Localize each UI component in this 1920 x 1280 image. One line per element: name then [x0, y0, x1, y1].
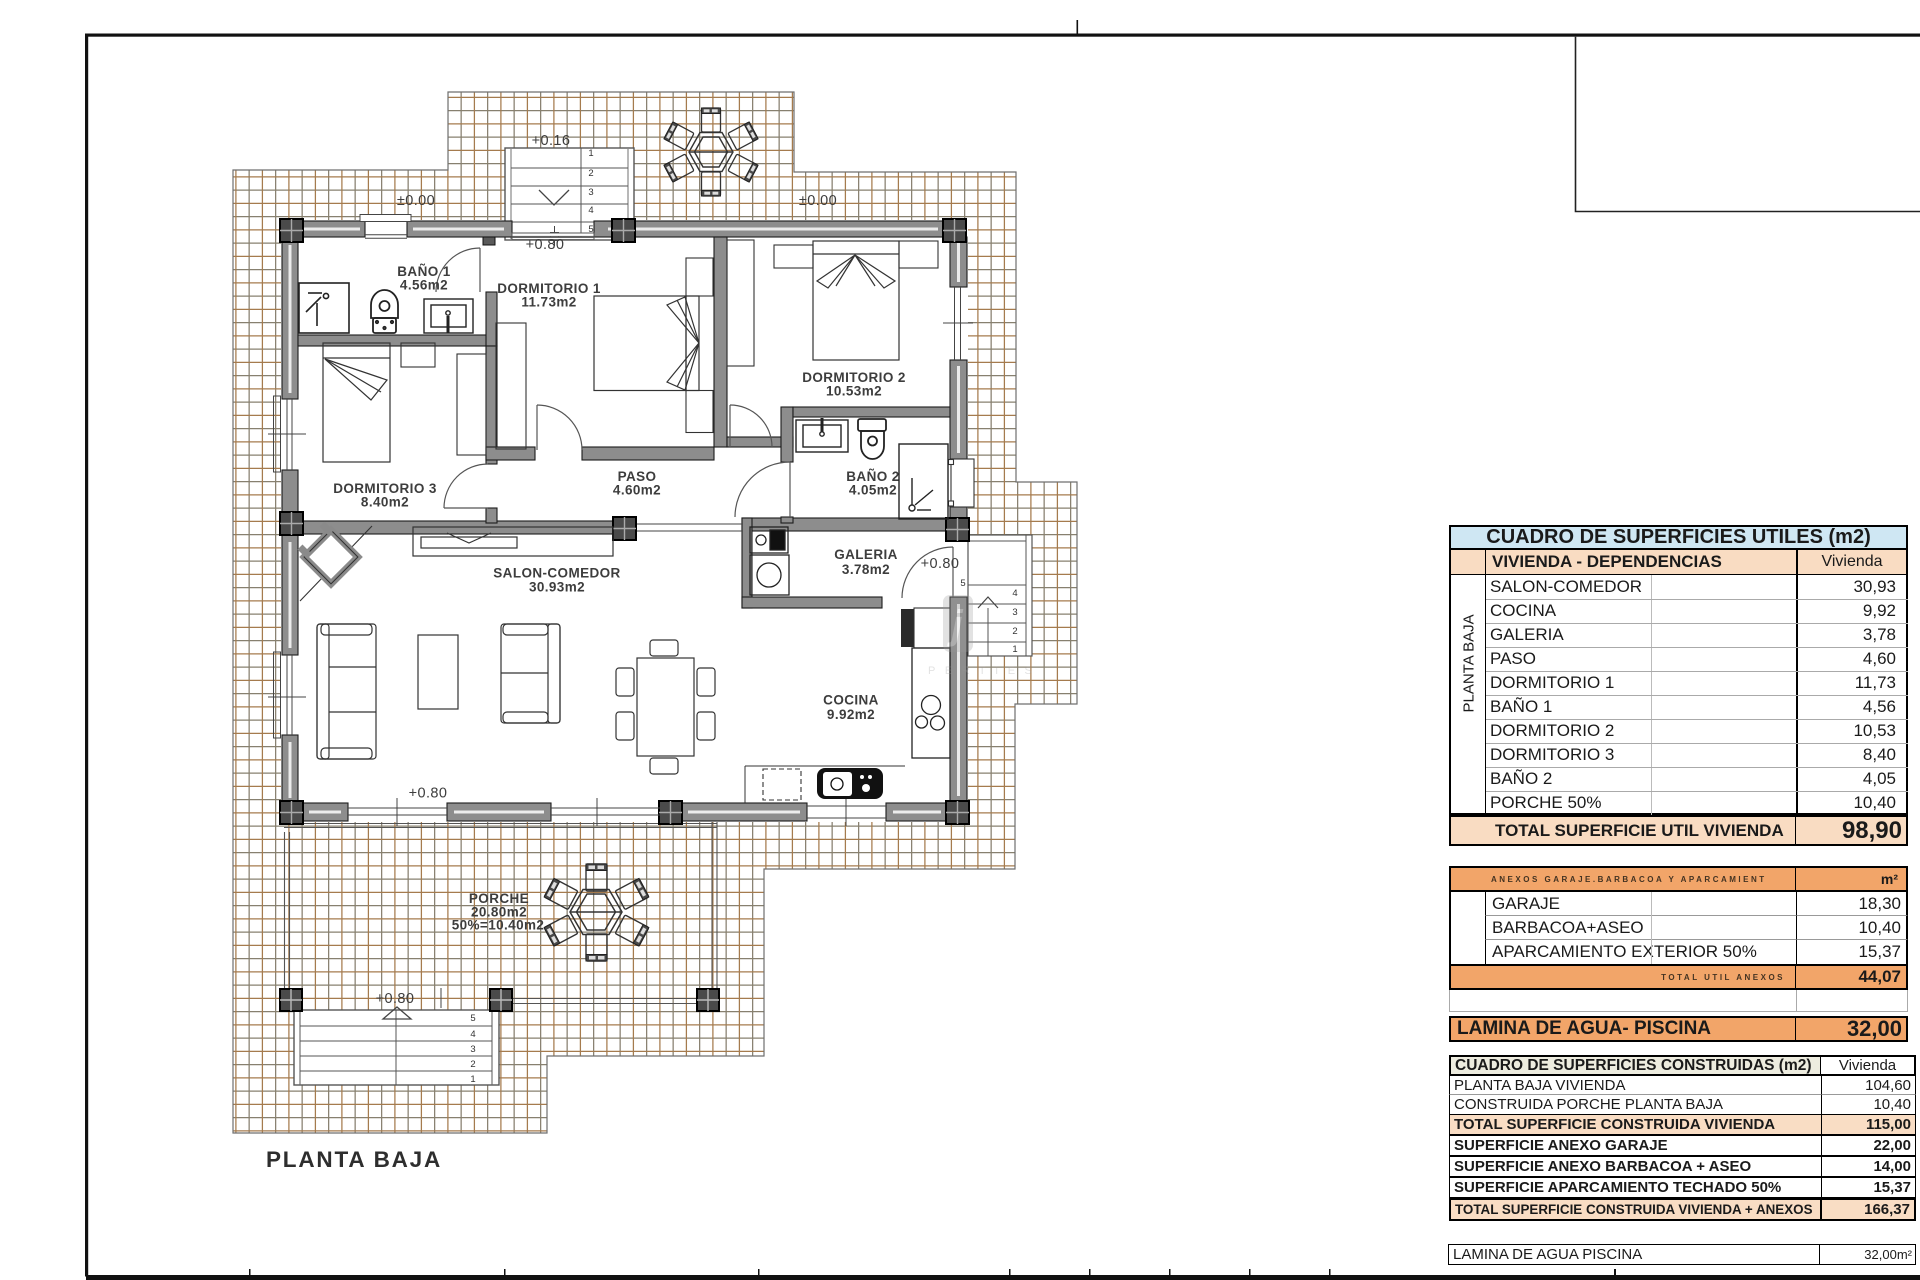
- svg-text:3: 3: [1012, 607, 1017, 618]
- svg-text:PERTIES: PERTIES: [928, 665, 1041, 677]
- svg-text:±0.00: ±0.00: [397, 193, 435, 209]
- svg-text:4.05m2: 4.05m2: [849, 483, 897, 498]
- svg-text:4: 4: [1012, 588, 1017, 599]
- svg-text:1: 1: [1012, 644, 1017, 655]
- svg-text:1: 1: [588, 148, 593, 159]
- svg-text:+0.80: +0.80: [376, 991, 415, 1007]
- svg-text:±0.00: ±0.00: [799, 193, 837, 209]
- svg-text:SALON-COMEDOR: SALON-COMEDOR: [493, 566, 620, 581]
- svg-text:30.93m2: 30.93m2: [529, 580, 585, 595]
- svg-text:11.73m2: 11.73m2: [521, 295, 576, 310]
- svg-text:+0.80: +0.80: [921, 556, 960, 572]
- svg-text:GALERIA: GALERIA: [834, 547, 898, 562]
- svg-text:1: 1: [470, 1074, 475, 1085]
- svg-text:9.92m2: 9.92m2: [827, 707, 875, 722]
- svg-text:PLANTA BAJA: PLANTA BAJA: [266, 1147, 442, 1172]
- svg-text:10.53m2: 10.53m2: [826, 384, 882, 399]
- svg-text:2: 2: [470, 1059, 475, 1070]
- svg-text:+0.16: +0.16: [532, 133, 571, 149]
- svg-text:4: 4: [470, 1029, 475, 1040]
- svg-text:2: 2: [588, 168, 593, 179]
- svg-text:COCINA: COCINA: [823, 693, 879, 708]
- svg-text:4.56m2: 4.56m2: [400, 278, 448, 293]
- svg-text:4.60m2: 4.60m2: [613, 483, 661, 498]
- svg-text:3: 3: [588, 187, 593, 198]
- svg-text:2: 2: [1012, 626, 1017, 637]
- svg-text:50%=10.40m2: 50%=10.40m2: [452, 918, 545, 933]
- svg-text:5: 5: [960, 578, 965, 589]
- svg-text:8.40m2: 8.40m2: [361, 495, 409, 510]
- svg-text:3.78m2: 3.78m2: [842, 562, 890, 577]
- svg-text:4: 4: [588, 205, 593, 216]
- svg-text:+0.80: +0.80: [526, 237, 565, 253]
- svg-text:5: 5: [470, 1013, 475, 1024]
- svg-text:+0.80: +0.80: [409, 786, 448, 802]
- svg-text:3: 3: [470, 1044, 475, 1055]
